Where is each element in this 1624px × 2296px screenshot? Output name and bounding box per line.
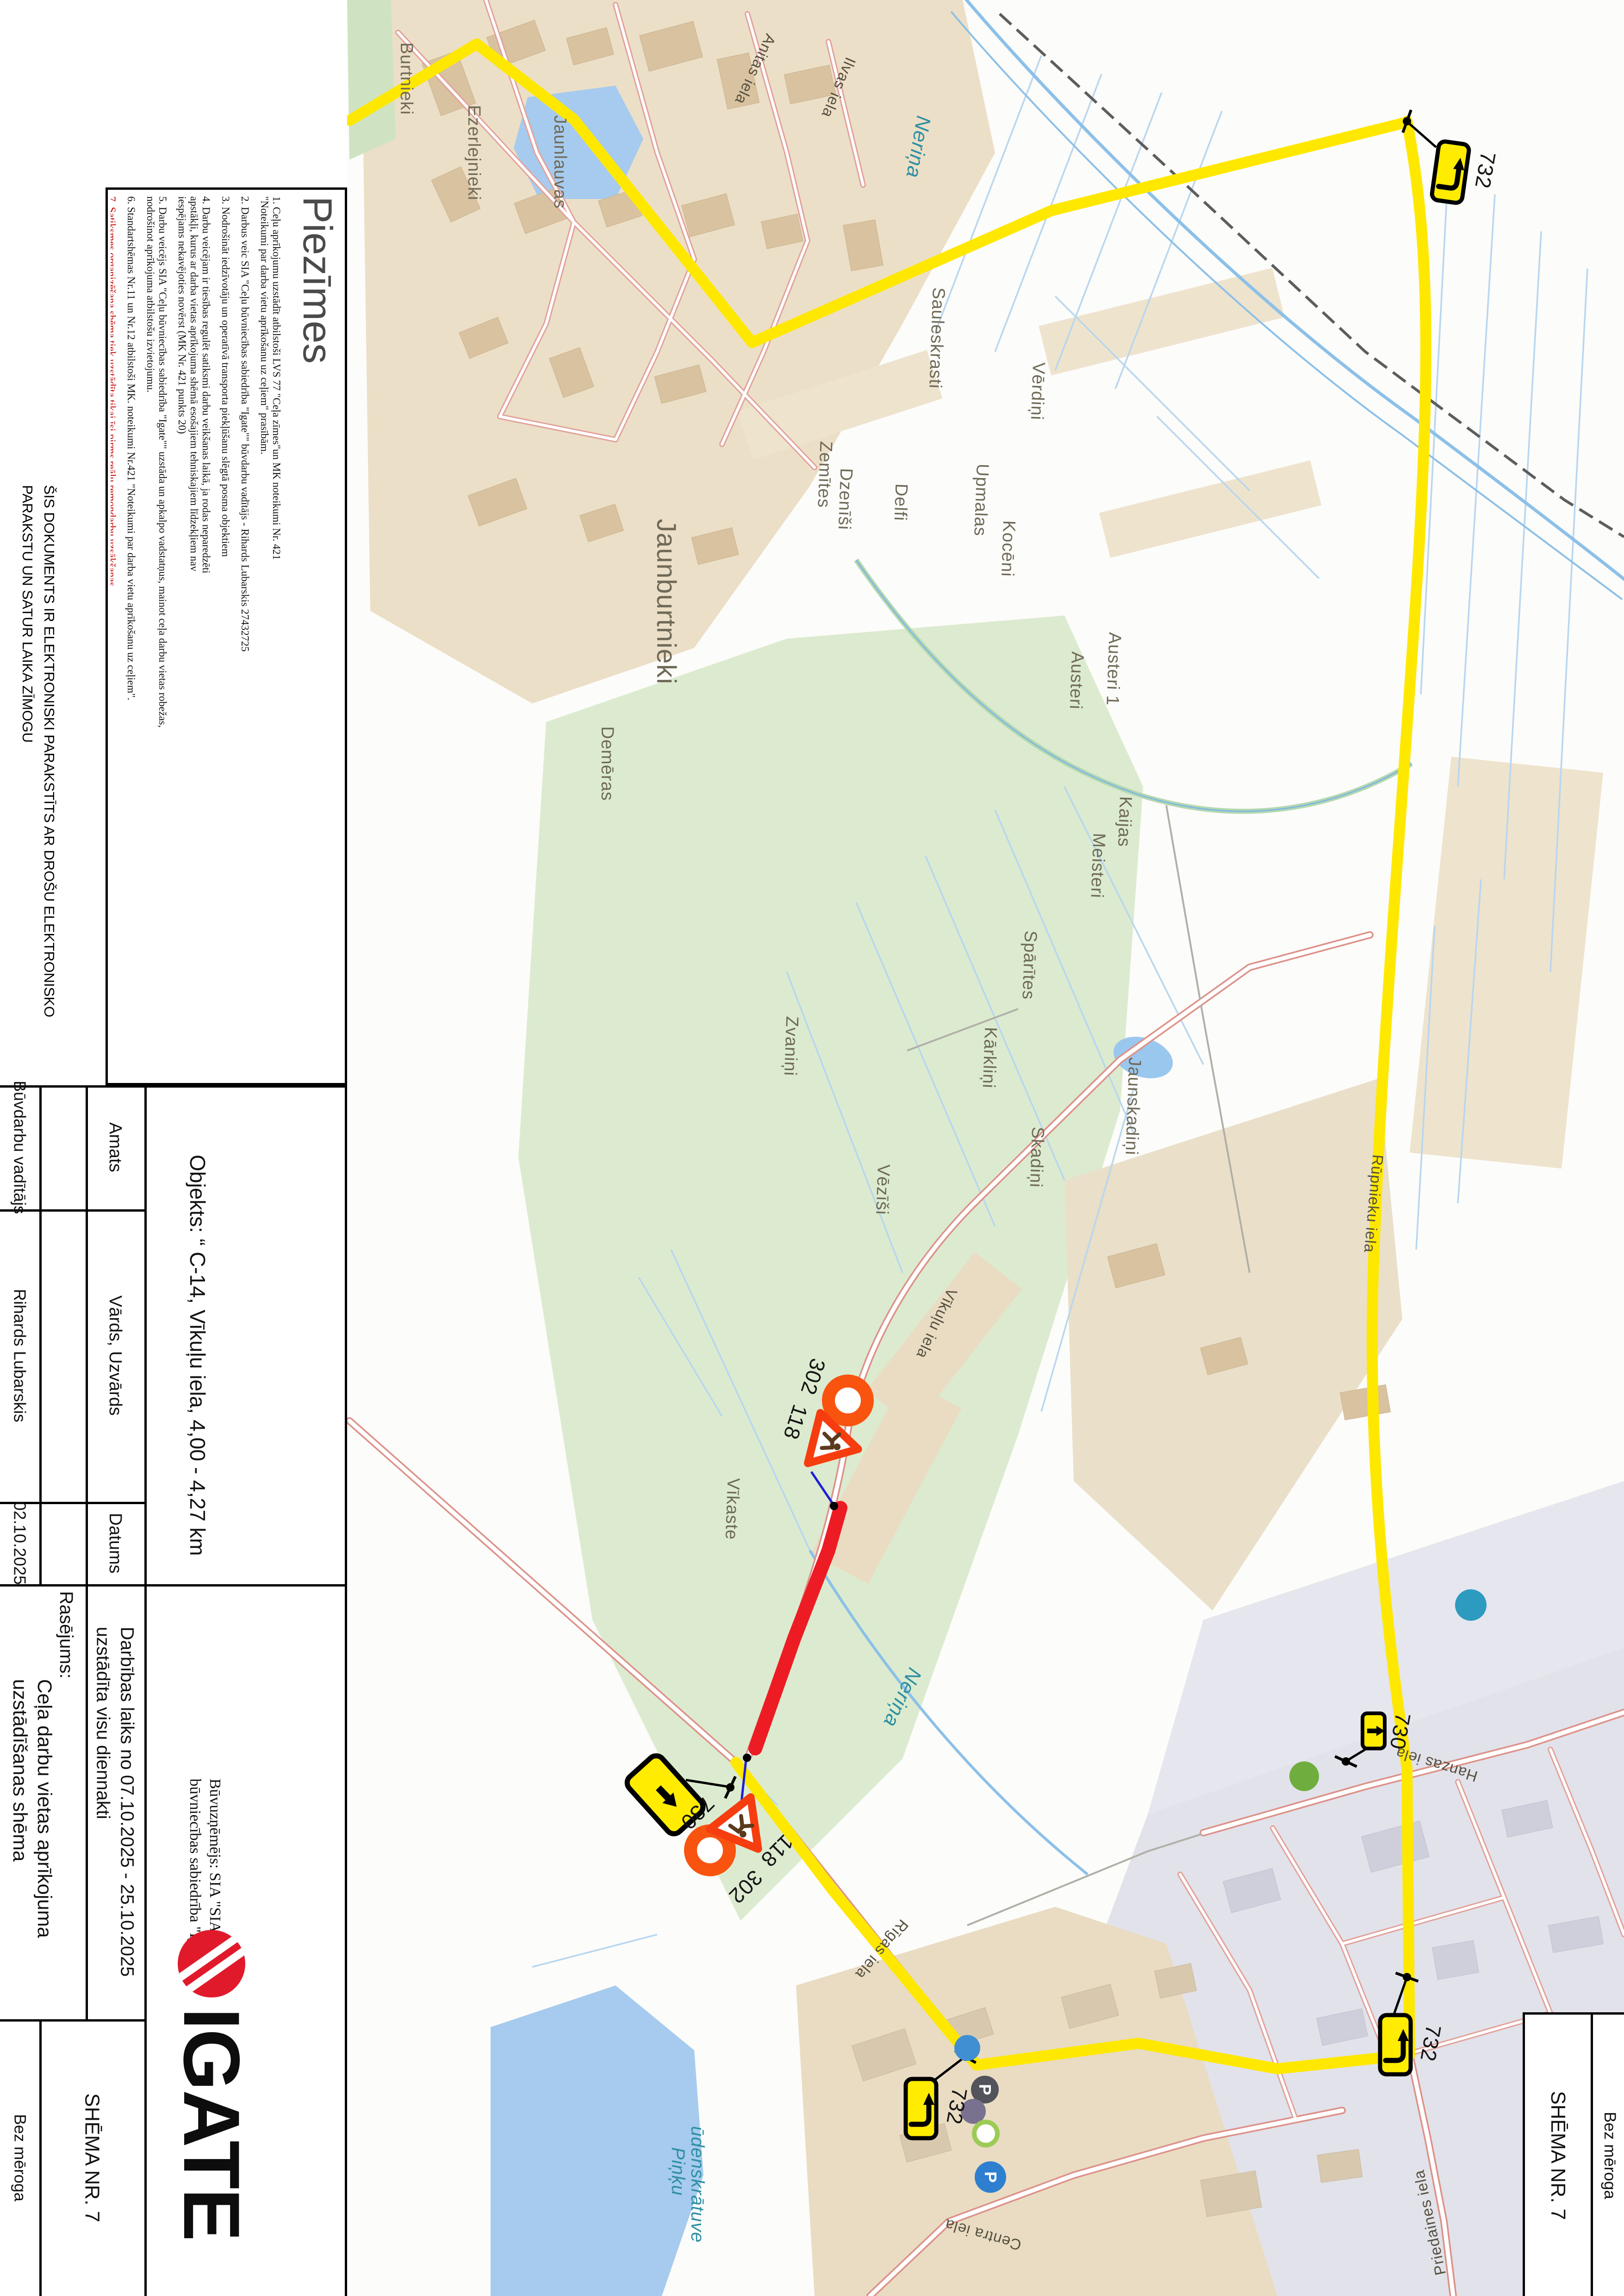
map-label: Kocēni — [997, 520, 1019, 578]
map-label: Jaunskadiņi — [1121, 1057, 1144, 1156]
corner-schema-nr: SHĒMA NR. 7 — [1546, 2091, 1569, 2220]
note-line-5: 4. Darbu veicējam ir tiesības regulēt sa… — [200, 196, 212, 1079]
rasejums-label: Rasējums: — [56, 1591, 76, 1679]
line-col1a — [39, 1085, 42, 1584]
rasejums-value: Ceļa darbu vietas aprīkojuma uzstādīšana… — [7, 1679, 56, 1938]
poi-icon — [954, 2035, 980, 2061]
corner-scale: Bez mēroga — [1600, 2112, 1619, 2199]
map-label: Sauleskrasti — [925, 287, 948, 389]
map-label: Kārkliņi — [979, 1027, 1001, 1089]
igate-logo-icon — [177, 1929, 246, 1998]
cell-darbibas: Darbības laiks no 07.10.2025 - 25.10.202… — [86, 1584, 144, 2019]
esignature-line1: ŠIS DOKUMENTS IR ELEKTRONISKI PARAKSTĪTS… — [38, 485, 60, 966]
note-line-1: 1. Ceļu aprīkojumu uzstādīt atbilstoši L… — [270, 196, 282, 1079]
note-line-7: iespējams nekavējoties novērst (MK Nr. 4… — [176, 196, 188, 1079]
cell-datums-value: 02.10.2025 — [0, 1502, 39, 1584]
road-sign-rect730 — [1363, 1713, 1385, 1748]
map-label: Ezerlejnieki — [464, 105, 484, 200]
scale-note: Bez mēroga — [11, 2114, 29, 2202]
poi-icon: P — [975, 2161, 1006, 2193]
darbibas-line2: uzstādīta visu diennakti — [91, 1627, 115, 1977]
note-line-10: 6. Standartshēmas Nr.11 un Nr.12 atbilst… — [125, 196, 137, 1079]
igate-logo: IGATE — [153, 1929, 270, 2295]
poi-icon — [974, 2122, 997, 2145]
datums-label: Datums — [105, 1513, 125, 1574]
note-line-2: "Noteikumi par darba vietu aprīkošanu uz… — [258, 196, 270, 1079]
map-label: Spārītes — [1018, 930, 1040, 1000]
line-right-column — [345, 187, 347, 2296]
amats-label: Amats — [105, 1122, 125, 1172]
datums-value: 02.10.2025 — [10, 1501, 30, 1585]
road-sign-rect732 — [1380, 2015, 1411, 2074]
map-label: Kaijas — [1114, 796, 1135, 847]
map-label: Zvaniņi — [780, 1016, 802, 1076]
line-col3 — [144, 1085, 147, 2296]
note-line-9: nodrošinot aprīkojuma atbilstošu izvieto… — [144, 196, 156, 1079]
corner-stamp: SHĒMA NR. 7 Bez mēroga — [1523, 2012, 1624, 2296]
site-map: PP EzerlejniekiBurtniekiJaunlauvasJaunbu… — [347, 0, 1624, 2296]
schema-nr: SHĒMA NR. 7 — [81, 2093, 104, 2222]
objekts-value: Objekts: “ C-14, Vīkuļu iela, 4,00 - 4,2… — [185, 1155, 210, 1556]
map-label: Meisteri — [1087, 833, 1109, 898]
map-label: Piņķu — [668, 2147, 688, 2196]
map-label: ūdenskrātuve — [687, 2126, 708, 2243]
road-sign-rect732 — [906, 2079, 936, 2138]
map-label: Demēras — [597, 726, 617, 801]
sign-post-marker — [830, 1502, 838, 1510]
cell-amats-value: Būvdarbu vadītājs — [0, 1085, 39, 1209]
poi-icon — [1455, 1589, 1487, 1621]
note-line-8: 5. Darbu veicējs SIA "Ceļu būvniecības s… — [156, 196, 168, 1079]
line-row3 — [0, 1584, 347, 1587]
rasejums-line2: uzstādīšanas shēma — [7, 1679, 32, 1938]
notes-box: Piezīmes 1. Ceļu aprīkojumu uzstādīt atb… — [106, 187, 347, 1085]
road-sign-rect732 — [1431, 141, 1469, 204]
map-label: Austeri — [1066, 651, 1087, 710]
cell-amats-label: Amats — [86, 1085, 144, 1209]
note-line-3: 2. Darbus veic SIA "Ceļu būvniecības sab… — [239, 196, 251, 1079]
svg-text:P: P — [976, 2084, 995, 2095]
map-label: Burtnieki — [397, 43, 416, 115]
esignature-line2: PARAKSTU UN SATUR LAIKA ZĪMOGU — [17, 485, 38, 966]
poi-icon — [1289, 1761, 1319, 1791]
svg-text:P: P — [981, 2172, 1000, 2183]
map-label: Jaunburtnieki — [651, 519, 681, 684]
road-sign-circle302 — [828, 1381, 867, 1420]
cell-datums-label: Datums — [86, 1502, 144, 1584]
map-label: Vēzīši — [872, 1164, 893, 1215]
cell-schema-nr: SHĒMA NR. 7 — [39, 2019, 144, 2296]
map-label: Jaunlauvas — [550, 115, 570, 209]
map-label: Zemītes — [814, 441, 835, 509]
cell-vards-label: Vārds, Uzvārds — [86, 1209, 144, 1502]
cell-scale: Bez mēroga — [0, 2019, 39, 2296]
vards-label: Vārds, Uzvārds — [105, 1295, 125, 1416]
map-label: Vērdiņi — [1027, 362, 1048, 421]
note-line-11: 7. Satiksmes organizēšana shēma tiek uzs… — [111, 196, 118, 1079]
vards-value: Rihards Lubarskis — [10, 1289, 30, 1422]
map-label: Skadiņi — [1026, 1126, 1048, 1188]
cell-vards-value: Rihards Lubarskis — [0, 1209, 39, 1502]
roadworks-scheme-sheet: { "notes": { "title": "Piezīmes", "lines… — [0, 0, 1624, 2296]
line-table-top — [0, 1085, 347, 1088]
map-label: Upmalas — [970, 463, 992, 536]
amats-value: Būvdarbu vadītājs — [10, 1081, 30, 1214]
igate-logo-text: IGATE — [166, 2008, 257, 2240]
esignature-statement: ŠIS DOKUMENTS IR ELEKTRONISKI PARAKSTĪTS… — [14, 485, 60, 966]
notes-body: Piezīmes 1. Ceļu aprīkojumu uzstādīt atb… — [111, 196, 341, 1079]
map-label: Vīkaste — [722, 1478, 743, 1540]
map-label: Dzenīši — [834, 468, 856, 530]
sign-post-marker — [743, 1754, 751, 1762]
map-label: Austeri 1 — [1102, 632, 1125, 706]
notes-title: Piezīmes — [294, 196, 341, 1079]
rasejums-line1: Ceļa darbu vietas aprīkojuma — [32, 1679, 56, 1938]
note-line-6: apstākļi, kurus ar darba vietas aprīkoju… — [188, 196, 200, 1079]
darbibas-line1: Darbības laiks no 07.10.2025 - 25.10.202… — [115, 1627, 139, 1977]
map-label: Delfi — [890, 483, 911, 521]
note-line-4: 3. Nodrošināt iedzīvotāju un operatīvā t… — [219, 196, 231, 1079]
